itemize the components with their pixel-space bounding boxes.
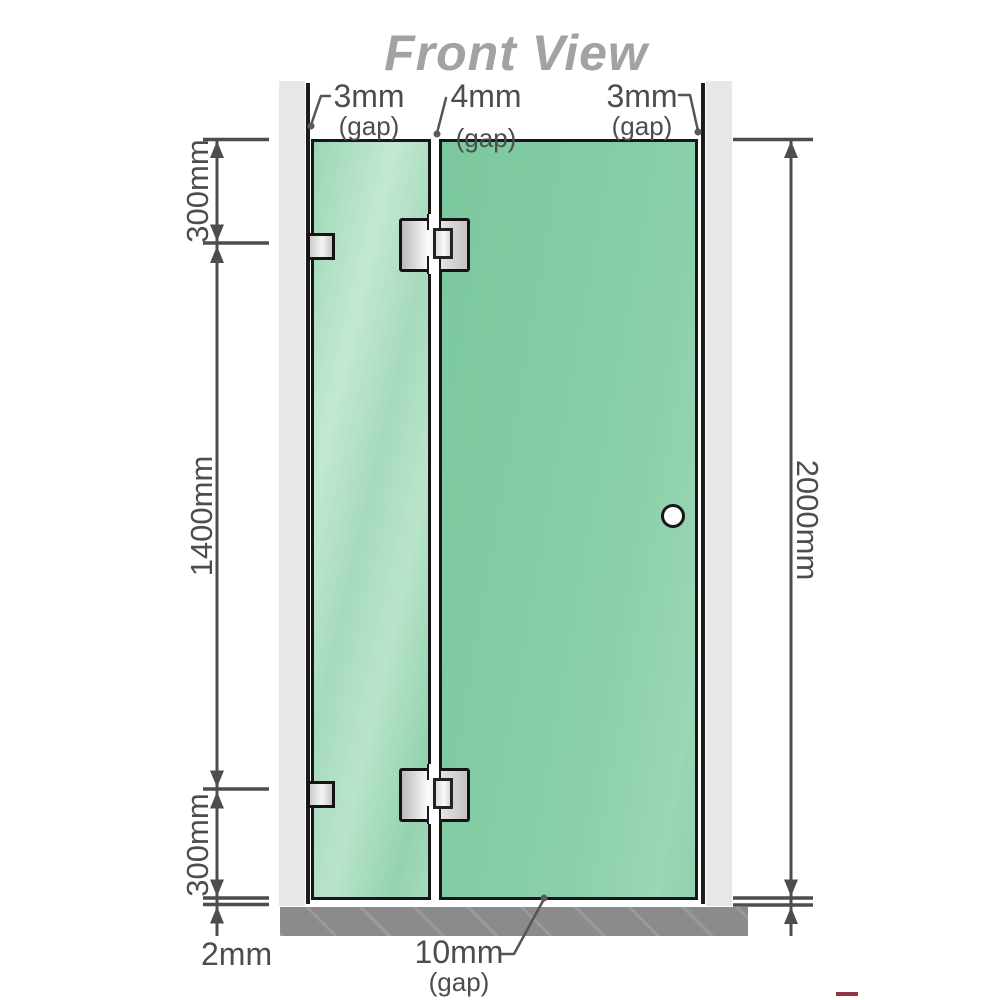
gap-value: 4mm (443, 80, 529, 112)
watermark-fragment (836, 992, 858, 996)
page-title: Front View (341, 24, 691, 82)
arrow-up-icon (210, 907, 224, 924)
wall-bracket-top (307, 233, 335, 260)
gap-label-top-left: 3mm (gap) (329, 80, 409, 139)
left-wall (279, 81, 305, 906)
dim-label-right-full: 2000mm (789, 460, 825, 581)
gap-value: 10mm (414, 936, 504, 968)
arrow-up-icon (784, 907, 798, 924)
diagram-canvas: Front View (0, 0, 1000, 1000)
arrow-down-icon (210, 771, 224, 788)
door-knob (661, 504, 685, 528)
leader-dot-icon (434, 131, 441, 138)
arrow-down-icon (784, 880, 798, 897)
gap-value: 3mm (329, 80, 409, 112)
gap-suffix: (gap) (602, 113, 682, 139)
arrow-up-icon (784, 141, 798, 158)
right-wall (706, 81, 732, 906)
door-glass-panel (439, 139, 698, 900)
dim-label-left-bottom: 300mm (180, 793, 216, 896)
gap-suffix: (gap) (329, 113, 409, 139)
gap-value: 3mm (602, 80, 682, 112)
gap-suffix: (gap) (414, 969, 504, 995)
right-wall-edge-line (701, 83, 705, 904)
hinge-knuckle-bottom (433, 778, 453, 809)
dim-label-left-top: 300mm (180, 139, 216, 242)
hinge-knuckle-top (433, 228, 453, 259)
gap-label-floor: 2mm (201, 936, 272, 973)
gap-suffix: (gap) (443, 125, 529, 151)
wall-bracket-bottom (307, 781, 335, 808)
dim-label-left-middle: 1400mm (184, 456, 220, 577)
gap-label-bottom: 10mm (gap) (414, 936, 504, 995)
leader-top-left (311, 96, 330, 125)
floor-base (280, 907, 748, 936)
gap-label-top-middle: 4mm (gap) (443, 80, 529, 151)
gap-label-top-right: 3mm (gap) (602, 80, 682, 139)
arrow-up-icon (210, 246, 224, 263)
